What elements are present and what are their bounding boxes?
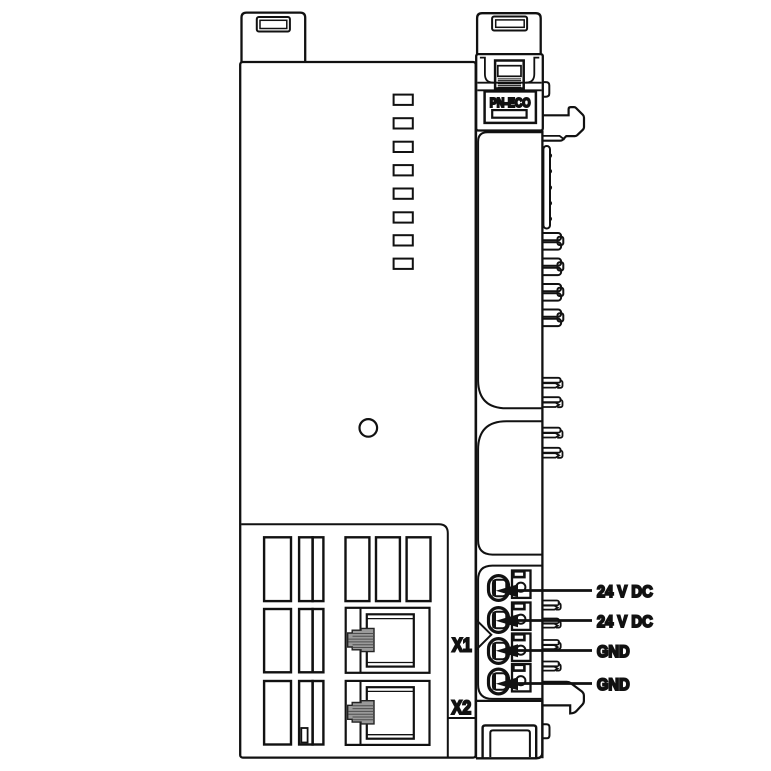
svg-text:X2: X2 xyxy=(452,697,472,719)
svg-text:GND: GND xyxy=(597,643,630,661)
svg-text:X1: X1 xyxy=(452,634,472,656)
svg-text:24 V DC: 24 V DC xyxy=(597,583,653,601)
svg-text:GND: GND xyxy=(597,676,630,694)
svg-text:PN-ECO: PN-ECO xyxy=(490,97,531,110)
svg-text:24 V DC: 24 V DC xyxy=(597,613,653,631)
